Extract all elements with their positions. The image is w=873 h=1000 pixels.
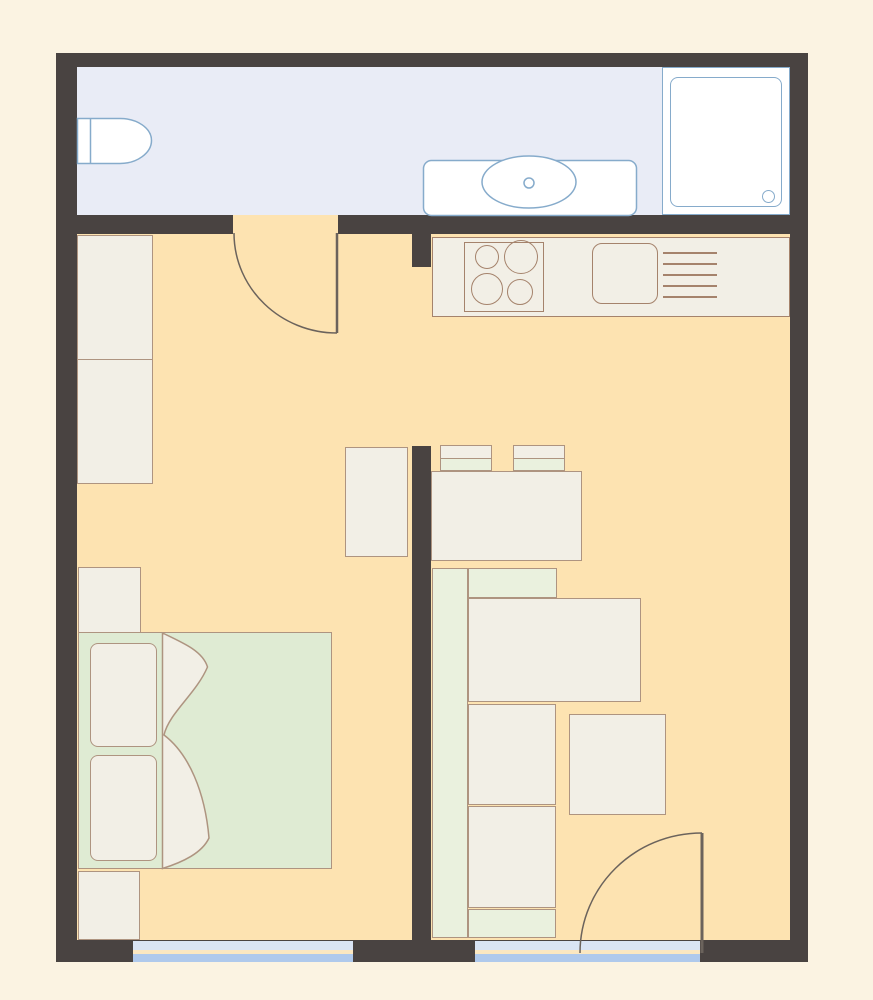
pillow-2 — [90, 755, 157, 861]
dining-table — [431, 471, 582, 561]
chair-1 — [440, 445, 492, 471]
sofa-seat-bottom — [468, 806, 556, 908]
burner-bottom-left-icon — [471, 273, 503, 305]
window-glass-outer — [133, 941, 353, 950]
burner-top-right-icon — [504, 240, 538, 274]
burner-top-left-icon — [475, 245, 499, 269]
chair-2 — [513, 445, 565, 471]
sofa-armrest-top — [468, 568, 557, 598]
wardrobe-section-1 — [77, 235, 153, 360]
chair-back — [440, 445, 492, 459]
room-divider-wall — [412, 446, 431, 940]
wardrobe-section-2 — [77, 359, 153, 484]
window-glass-inner — [133, 954, 353, 962]
bedroom-window — [133, 941, 353, 962]
shower-drain-icon — [762, 190, 775, 203]
nightstand-top — [78, 567, 141, 633]
chair-back — [513, 445, 565, 459]
sofa-seat-chaise — [468, 598, 641, 702]
sofa-seat-middle — [468, 704, 556, 805]
dish-drainer-line — [663, 263, 717, 265]
coffee-table — [569, 714, 666, 815]
floor-plan — [0, 0, 873, 1000]
kitchen-wall-stub — [412, 234, 431, 267]
living-room-window — [475, 941, 700, 962]
dish-drainer-line — [663, 285, 717, 287]
shower-tray-inner — [670, 77, 782, 207]
burner-bottom-right-icon — [507, 279, 533, 305]
chair-seat — [513, 459, 565, 471]
dish-drainer-line — [663, 274, 717, 276]
sofa-backrest — [432, 568, 468, 938]
bathroom-door-opening — [233, 215, 338, 234]
window-glass-outer — [475, 941, 700, 950]
dresser — [345, 447, 408, 557]
dish-drainer-line — [663, 296, 717, 298]
window-glass-inner — [475, 954, 700, 962]
sofa-armrest-bottom — [468, 909, 556, 938]
kitchen-sink — [592, 243, 658, 304]
nightstand-bottom — [78, 871, 140, 940]
dish-drainer-line — [663, 252, 717, 254]
pillow-1 — [90, 643, 157, 747]
chair-seat — [440, 459, 492, 471]
